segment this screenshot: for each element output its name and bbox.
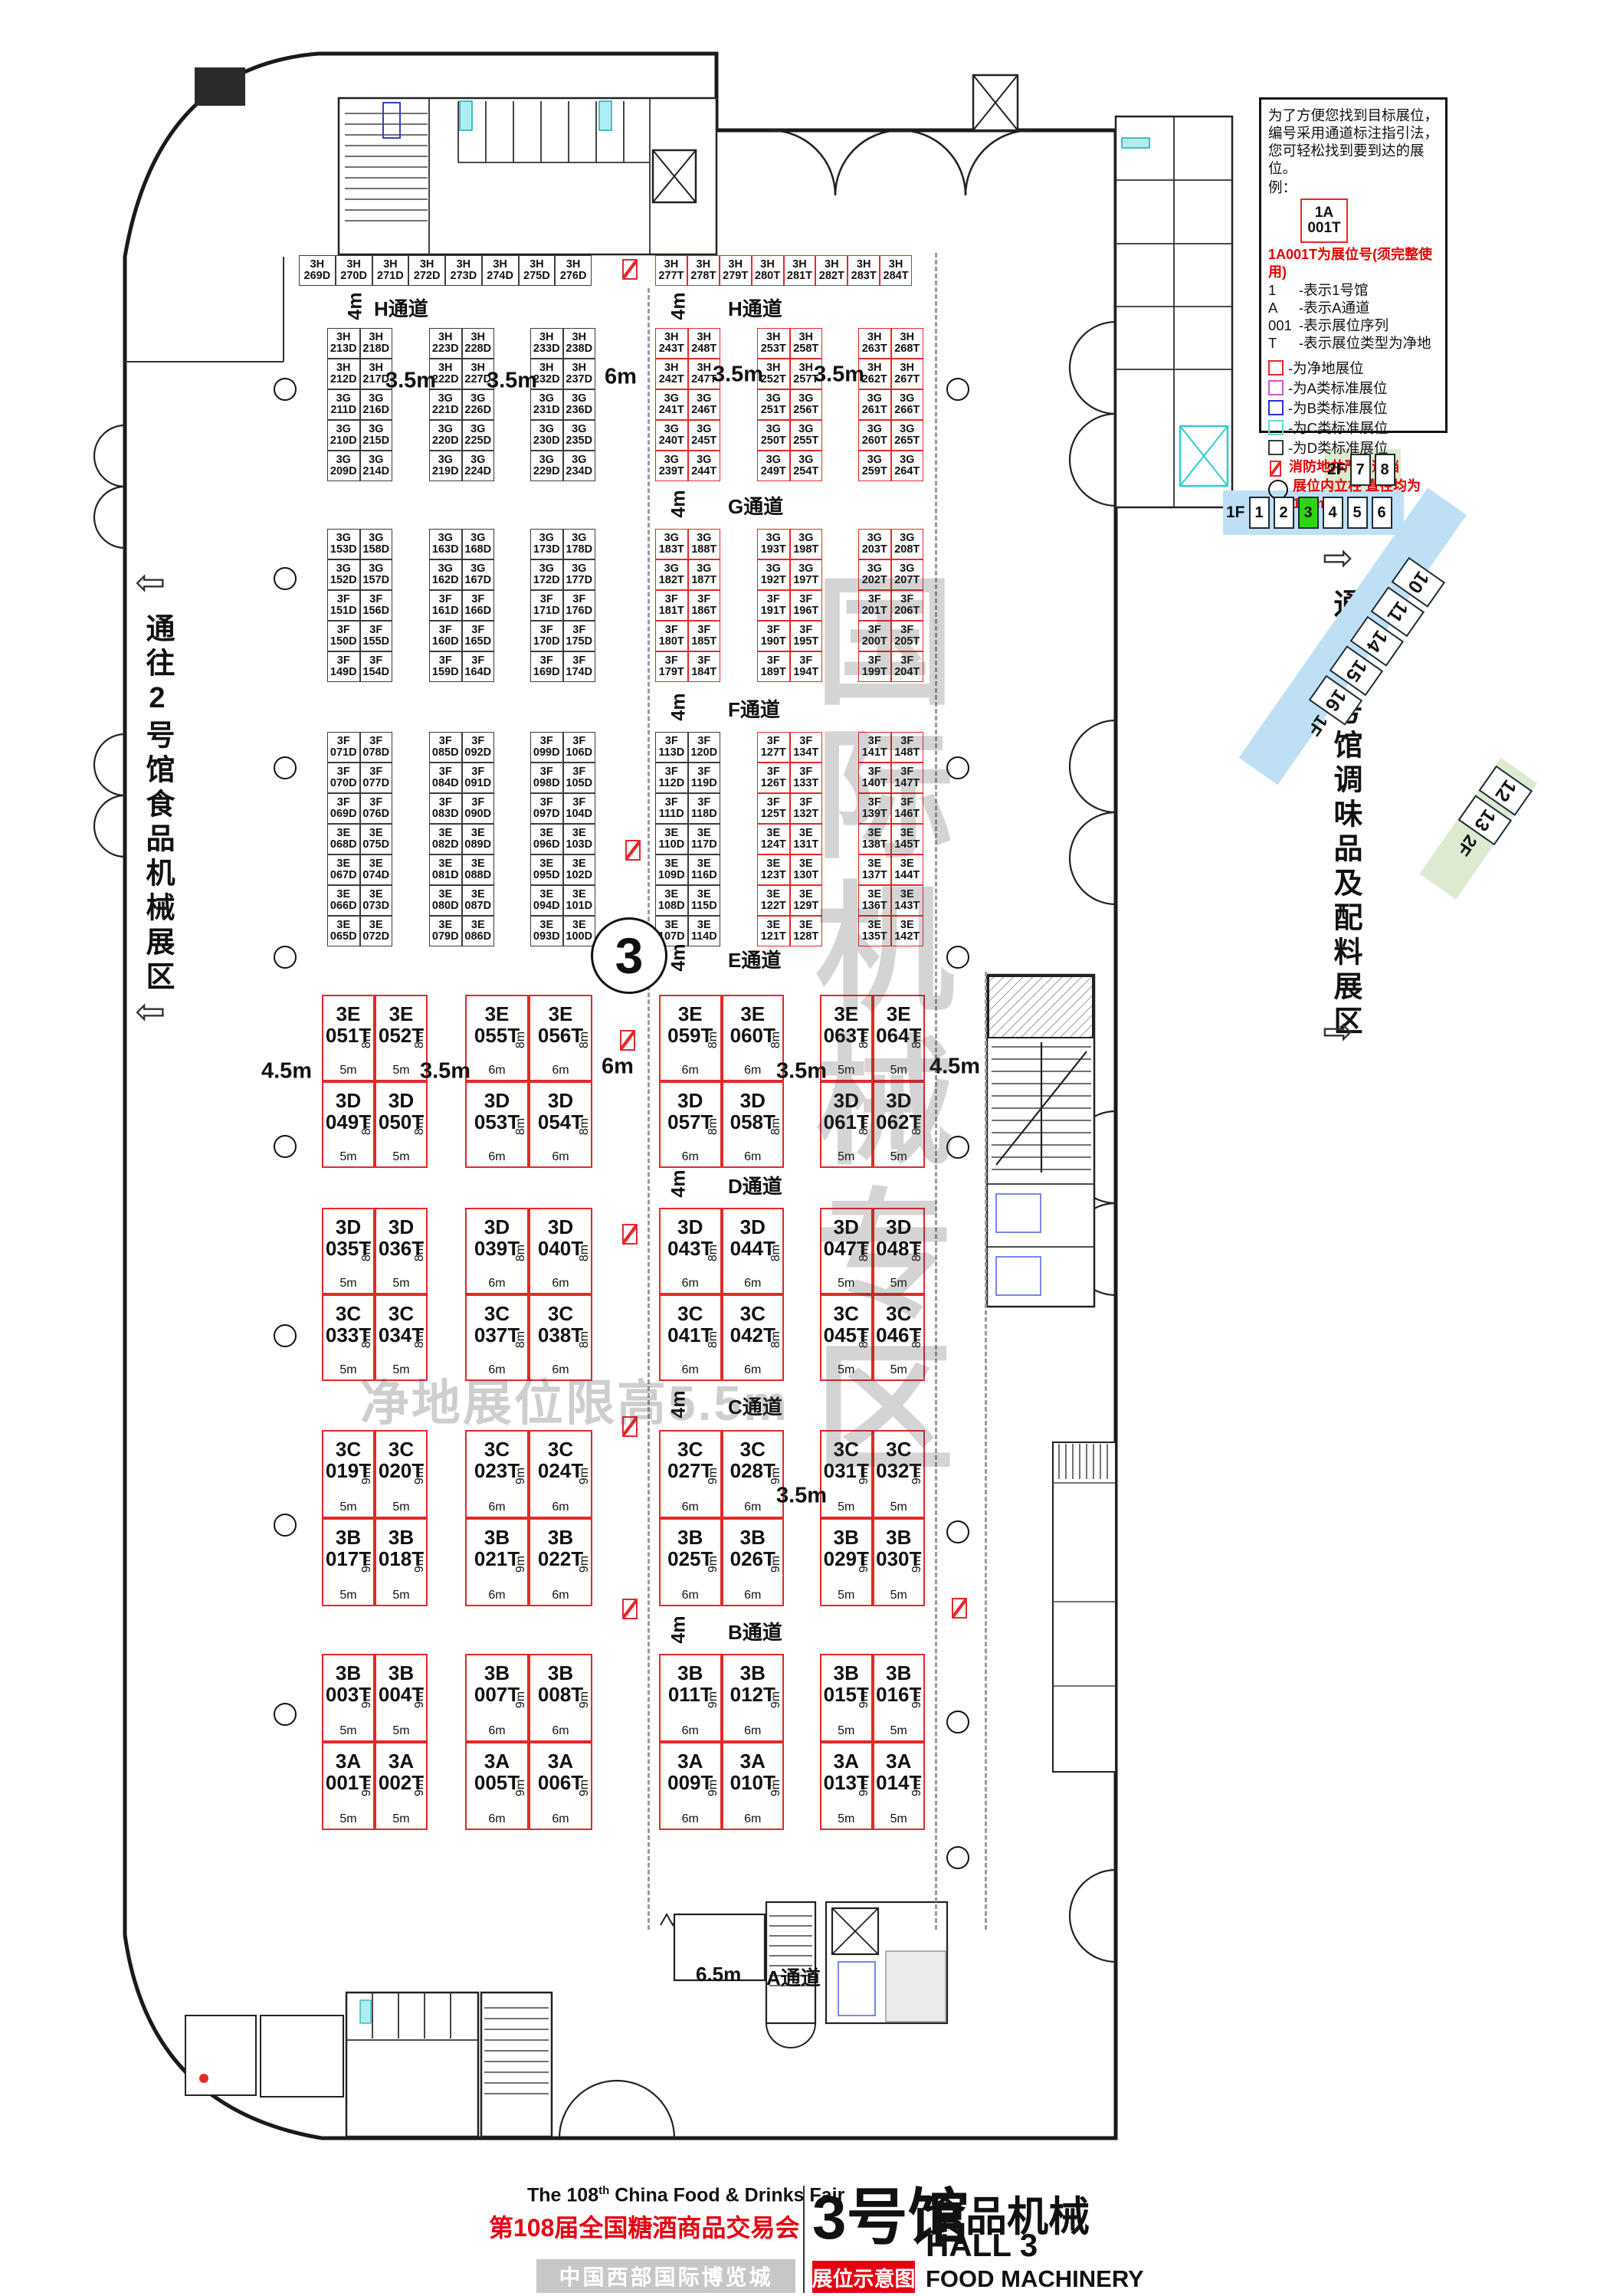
minimap-floor-label: 1F xyxy=(1226,503,1245,522)
booth-width: 5m xyxy=(874,1812,924,1826)
booth[interactable]: 3E079D xyxy=(429,916,462,946)
booth[interactable]: 3B025T9m6m xyxy=(659,1518,722,1606)
minimap-hall[interactable]: 5 xyxy=(1347,497,1368,529)
booth[interactable]: 3F078D xyxy=(360,732,393,763)
booth[interactable]: 3F077D xyxy=(360,763,393,793)
booth[interactable]: 3G162D xyxy=(429,559,462,590)
booth[interactable]: 3F083D xyxy=(429,793,462,824)
booth[interactable]: 3H278T xyxy=(687,255,720,286)
booth[interactable]: 3G259T xyxy=(858,451,891,481)
booth-width: 5m xyxy=(323,1150,373,1164)
booth[interactable]: 3F151D xyxy=(327,590,360,621)
booth[interactable]: 3E080D xyxy=(429,885,462,916)
booth[interactable]: 3E056T8m6m xyxy=(529,995,592,1081)
booth[interactable]: 3G239T xyxy=(655,451,688,481)
booth[interactable]: 3H281T xyxy=(784,255,816,286)
booth[interactable]: 3B030T9m5m xyxy=(873,1518,926,1606)
booth-hall: 3G xyxy=(572,424,586,436)
booth[interactable]: 3F098D xyxy=(530,763,563,793)
booth[interactable]: 3G182T xyxy=(655,559,688,590)
booth[interactable]: 3G219D xyxy=(429,451,462,481)
booth[interactable]: 3G240T xyxy=(655,420,688,451)
booth[interactable]: 3H223D xyxy=(429,328,462,359)
booth[interactable]: 3B018T9m5m xyxy=(375,1518,428,1606)
booth[interactable]: 3H238D xyxy=(563,328,596,359)
booth[interactable]: 3B008T9m6m xyxy=(529,1654,592,1742)
booth-num: 252T xyxy=(761,374,786,386)
booth[interactable]: 3B012T9m6m xyxy=(722,1654,785,1742)
booth[interactable]: 3D036T8m5m xyxy=(375,1208,428,1294)
booth[interactable]: 3C024T9m6m xyxy=(529,1430,592,1518)
booth[interactable]: 3H282T xyxy=(815,255,848,286)
booth[interactable]: 3G245T xyxy=(688,420,721,451)
booth[interactable]: 3F155D xyxy=(360,621,393,651)
booth[interactable]: 3D057T8m6m xyxy=(659,1081,722,1168)
booth[interactable]: 3G158D xyxy=(360,529,393,559)
booth[interactable]: 3H273D xyxy=(445,255,482,286)
booth[interactable]: 3F111D xyxy=(655,793,688,824)
hall-number-marker: 3 xyxy=(591,917,667,994)
minimap-hall[interactable]: 7 xyxy=(1350,454,1371,486)
legend-example-label: 例： xyxy=(1268,179,1439,196)
booth[interactable]: 3H267T xyxy=(891,359,924,389)
booth[interactable]: 3A001T9m5m xyxy=(322,1742,375,1830)
booth[interactable]: 3G188T xyxy=(688,529,721,559)
booth[interactable]: 3H268T xyxy=(891,328,924,359)
booth[interactable]: 3F181T xyxy=(655,590,688,621)
booth-hall: 3G xyxy=(471,563,485,576)
legend-box: 为了方便您找到目标展位，编号采用通道标注指引法，您可轻松找到要到达的展位。 例：… xyxy=(1259,97,1448,433)
booth[interactable]: 3A002T9m5m xyxy=(375,1742,428,1830)
booth[interactable]: 3G266T xyxy=(891,389,924,420)
booth[interactable]: 3G221D xyxy=(429,389,462,420)
booth-num: 156D xyxy=(362,605,389,618)
booth[interactable]: 3B017T9m5m xyxy=(322,1518,375,1606)
booth[interactable]: 3D054T8m6m xyxy=(529,1081,592,1168)
booth-depth: 9m xyxy=(910,1779,924,1796)
booth-num: 104D xyxy=(566,809,592,821)
booth[interactable]: 3E108D xyxy=(655,885,688,916)
zone-dashed-line xyxy=(648,288,650,1930)
booth-hall: 3H xyxy=(420,259,434,271)
booth[interactable]: 3E065D xyxy=(327,916,360,946)
map-tag: 展位示意图 xyxy=(812,2261,915,2293)
booth[interactable]: 3F176D xyxy=(563,590,596,621)
booth[interactable]: 3F179T xyxy=(655,651,688,682)
booth[interactable]: 3F076D xyxy=(360,793,393,824)
booth[interactable]: 3E067D xyxy=(327,854,360,885)
booth[interactable]: 3H271D xyxy=(372,255,409,286)
booth[interactable]: 3E094D xyxy=(530,885,563,916)
booth[interactable]: 3G152D xyxy=(327,559,360,590)
booth[interactable]: 3E082D xyxy=(429,824,462,854)
booth[interactable]: 3F150D xyxy=(327,621,360,651)
booth[interactable]: 3D039T8m6m xyxy=(465,1208,529,1294)
booth[interactable]: 3H280T xyxy=(752,255,784,286)
booth[interactable]: 3G177D xyxy=(563,559,596,590)
minimap-hall[interactable]: 4 xyxy=(1323,497,1343,529)
booth-hall: 3G xyxy=(369,454,383,467)
minimap-hall[interactable]: 2 xyxy=(1274,497,1294,529)
booth[interactable]: 3A010T9m6m xyxy=(722,1742,785,1830)
booth[interactable]: 3F185T xyxy=(688,621,721,651)
booth[interactable]: 3G234D xyxy=(563,451,596,481)
booth-hall: 3G xyxy=(798,533,813,545)
booth-hall: 3E xyxy=(369,858,383,871)
booth[interactable]: 3E086D xyxy=(462,916,495,946)
booth[interactable]: 3B021T9m6m xyxy=(465,1518,529,1606)
pillar-column xyxy=(946,378,969,401)
booth-num: 072D xyxy=(362,931,389,943)
booth-width: 5m xyxy=(821,1724,871,1738)
booth[interactable]: 3A009T9m6m xyxy=(659,1742,722,1830)
booth[interactable]: 3E051T8m5m xyxy=(322,995,375,1081)
booth-hall: 3F xyxy=(369,766,382,779)
booth[interactable]: 3F091D xyxy=(462,763,495,793)
booth[interactable]: 3H212D xyxy=(327,359,360,389)
booth-hall: 3H xyxy=(471,362,485,375)
booth[interactable]: 3E095D xyxy=(530,854,563,885)
booth[interactable]: 3G231D xyxy=(530,389,563,420)
booth[interactable]: 3E117D xyxy=(688,824,721,854)
booth-width: 5m xyxy=(821,1501,871,1514)
booth[interactable]: 3G193T xyxy=(757,529,790,559)
booth[interactable]: 3G250T xyxy=(757,420,790,451)
booth-hall: 3G xyxy=(766,454,781,467)
booth[interactable]: 3G249T xyxy=(757,451,790,481)
booth-num: 079D xyxy=(432,931,459,943)
booth[interactable]: 3H284T xyxy=(880,255,912,286)
booth[interactable]: 3F186T xyxy=(688,590,721,621)
booth[interactable]: 3E089D xyxy=(462,824,495,854)
booth[interactable]: 3A013T9m5m xyxy=(820,1742,873,1830)
booth-depth: 9m xyxy=(413,1691,427,1708)
booth[interactable]: 3G244T xyxy=(688,451,721,481)
booth[interactable]: 3H253T xyxy=(757,328,790,359)
booth[interactable]: 3F119D xyxy=(688,763,721,793)
booth[interactable]: 3E102D xyxy=(563,854,596,885)
booth-num: 246T xyxy=(691,405,716,417)
booth-depth: 9m xyxy=(514,1779,528,1796)
minimap-hall[interactable]: 8 xyxy=(1375,454,1395,486)
booth[interactable]: 3F149D xyxy=(327,651,360,682)
booth[interactable]: 3F071D xyxy=(327,732,360,763)
booth[interactable]: 3G229D xyxy=(530,451,563,481)
booth[interactable]: 3C019T9m5m xyxy=(322,1430,375,1518)
booth[interactable]: 3G251T xyxy=(757,389,790,420)
booth[interactable]: 3G163D xyxy=(429,529,462,559)
pillar-column xyxy=(274,567,297,590)
booth[interactable]: 3E072D xyxy=(360,916,393,946)
booth[interactable]: 3F171D xyxy=(530,590,563,621)
booth-num: 249T xyxy=(761,466,786,478)
booth[interactable]: 3E068D xyxy=(327,824,360,854)
aisle-label: G通道 xyxy=(728,491,783,520)
booth-hall: 3F xyxy=(665,594,678,606)
booth-hall: 3G xyxy=(539,454,554,467)
booth[interactable]: 3H279T xyxy=(720,255,752,286)
minimap-hall[interactable]: 3 xyxy=(1298,497,1319,529)
booth-hall: 3G xyxy=(369,533,383,545)
booth[interactable]: 3H258T xyxy=(790,328,823,359)
booth-num: 212D xyxy=(330,374,357,386)
booth[interactable]: 3H228D xyxy=(462,328,495,359)
booth[interactable]: 3E110D xyxy=(655,824,688,854)
booth[interactable]: 3E074D xyxy=(360,854,393,885)
booth-num: 193T xyxy=(761,544,786,556)
booth[interactable]: 3D049T8m5m xyxy=(322,1081,375,1168)
booth[interactable]: 3D053T8m6m xyxy=(465,1081,529,1168)
booth-depth: 9m xyxy=(360,1779,374,1796)
booth[interactable]: 3B003T9m5m xyxy=(322,1654,375,1742)
booth-hall: 3G xyxy=(664,424,679,436)
booth-hall: 3F xyxy=(471,766,484,779)
booth-hall: 3H xyxy=(697,259,711,271)
booth[interactable]: 3E055T8m6m xyxy=(465,995,529,1081)
booth-width: 5m xyxy=(323,1812,373,1826)
booth-hall: 3G xyxy=(336,393,351,405)
booth-num: 226D xyxy=(464,405,491,417)
booth-width: 6m xyxy=(530,1064,591,1077)
booth[interactable]: 3G246T xyxy=(688,389,721,420)
booth-hall: 3H xyxy=(857,259,871,271)
booth[interactable]: 3D035T8m5m xyxy=(322,1208,375,1294)
booth-hall: 3F xyxy=(439,594,452,606)
booth[interactable]: 3G235D xyxy=(563,420,596,451)
booth[interactable]: 3G230D xyxy=(530,420,563,451)
booth[interactable]: 3G167D xyxy=(462,559,495,590)
fair-title-cn: 第108届全国糖酒商品交易会 xyxy=(489,2209,795,2244)
booth[interactable]: 3F166D xyxy=(462,590,495,621)
booth-hall: 3G xyxy=(867,393,882,405)
pillar-column xyxy=(274,378,297,401)
booth[interactable]: 3H275D xyxy=(519,255,556,286)
booth-num: 111D xyxy=(659,809,684,821)
booth[interactable]: 3G216D xyxy=(360,389,393,420)
booth[interactable]: 3G261T xyxy=(858,389,891,420)
booth[interactable]: 3H283T xyxy=(848,255,880,286)
booth[interactable]: 3E093D xyxy=(530,916,563,946)
booth[interactable]: 3F070D xyxy=(327,763,360,793)
booth-num: 216D xyxy=(362,405,389,417)
booth[interactable]: 3D050T8m5m xyxy=(375,1081,428,1168)
booth[interactable]: 3G215D xyxy=(360,420,393,451)
booth-hall: 3G xyxy=(697,424,711,436)
booth[interactable]: 3G241T xyxy=(655,389,688,420)
booth[interactable]: 3F160D xyxy=(429,621,462,651)
booth-hall: 3E xyxy=(471,889,485,901)
booth[interactable]: 3G172D xyxy=(530,559,563,590)
booth[interactable]: 3F170D xyxy=(530,621,563,651)
booth[interactable]: 3H213D xyxy=(327,328,360,359)
booth[interactable]: 3E100D xyxy=(563,916,596,946)
booth[interactable]: 3E096D xyxy=(530,824,563,854)
booth[interactable]: 3G178D xyxy=(563,529,596,559)
booth[interactable]: 3F120D xyxy=(688,732,721,763)
booth[interactable]: 3H270D xyxy=(336,255,372,286)
booth-hall: 3F xyxy=(540,736,553,748)
booth[interactable]: 3A006T9m6m xyxy=(529,1742,592,1830)
booth[interactable]: 3H242T xyxy=(655,359,688,389)
booth-num: 113D xyxy=(658,747,684,759)
booth[interactable]: 3B029T9m5m xyxy=(820,1518,873,1606)
zone-dashed-line xyxy=(985,972,987,1930)
booth[interactable]: 3H263T xyxy=(858,328,891,359)
booth[interactable]: 3D043T8m6m xyxy=(659,1208,722,1294)
booth-num: 100D xyxy=(566,931,592,943)
booth[interactable]: 3F106D xyxy=(563,732,596,763)
booth[interactable]: 3E075D xyxy=(360,824,393,854)
booth[interactable]: 3G224D xyxy=(462,451,495,481)
booth[interactable]: 3E059T8m6m xyxy=(659,995,722,1081)
booth[interactable]: 3F184T xyxy=(688,651,721,682)
booth[interactable]: 3B004T9m5m xyxy=(375,1654,428,1742)
booth[interactable]: 3G220D xyxy=(429,420,462,451)
booth[interactable]: 3H233D xyxy=(530,328,563,359)
booth[interactable]: 3F174D xyxy=(563,651,596,682)
booth[interactable]: 3G203T xyxy=(858,529,891,559)
booth-hall: 3F xyxy=(572,625,585,637)
booth-num: 077D xyxy=(362,778,389,790)
booth[interactable]: 3C027T9m6m xyxy=(659,1430,722,1518)
booth[interactable]: 3F112D xyxy=(655,763,688,793)
booth[interactable]: 3G187T xyxy=(688,559,721,590)
booth[interactable]: 3H218D xyxy=(360,328,393,359)
booth-depth: 8m xyxy=(707,1331,720,1348)
booth[interactable]: 3G209D xyxy=(327,451,360,481)
booth[interactable]: 3F085D xyxy=(429,732,462,763)
booth-depth: 9m xyxy=(769,1556,783,1573)
booth[interactable]: 3H243T xyxy=(655,328,688,359)
minimap-hall[interactable]: 6 xyxy=(1372,497,1392,529)
booth[interactable]: 3H276D xyxy=(555,255,592,286)
booth[interactable]: 3G264T xyxy=(891,451,924,481)
booth[interactable]: 3H237D xyxy=(563,359,596,389)
booth[interactable]: 3E073D xyxy=(360,885,393,916)
booth[interactable]: 3G173D xyxy=(530,529,563,559)
booth-hall: 3E xyxy=(336,858,350,871)
booth[interactable]: 3G236D xyxy=(563,389,596,420)
booth[interactable]: 3B016T9m5m xyxy=(873,1654,926,1742)
booth[interactable]: 3B022T9m6m xyxy=(529,1518,592,1606)
booth-width: 5m xyxy=(874,1724,924,1738)
booth[interactable]: 3F092D xyxy=(462,732,495,763)
booth[interactable]: 3G208T xyxy=(891,529,924,559)
booth[interactable]: 3E088D xyxy=(462,854,495,885)
booth[interactable]: 3G260T xyxy=(858,420,891,451)
booth[interactable]: 3H274D xyxy=(482,255,519,286)
booth[interactable]: 3E114D xyxy=(688,916,721,946)
left-arrow-icon: ⇦ xyxy=(135,561,166,604)
booth[interactable]: 3G157D xyxy=(360,559,393,590)
booth[interactable]: 3G265T xyxy=(891,420,924,451)
booth[interactable]: 3F154D xyxy=(360,651,393,682)
booth-num: 179T xyxy=(659,667,684,679)
booth[interactable]: 3B007T9m6m xyxy=(465,1654,529,1742)
booth[interactable]: 3C023T9m6m xyxy=(465,1430,529,1518)
booth[interactable]: 3G211D xyxy=(327,389,360,420)
booth-hall: 3E xyxy=(572,920,586,932)
booth[interactable]: 3F069D xyxy=(327,793,360,824)
booth[interactable]: 3G198T xyxy=(790,529,823,559)
booth[interactable]: 3A014T9m5m xyxy=(873,1742,926,1830)
booth[interactable]: 3G254T xyxy=(790,451,823,481)
aisle-dim-label: 4m xyxy=(668,1169,690,1197)
booth-num: 081D xyxy=(432,870,459,882)
booth[interactable]: 3F118D xyxy=(688,793,721,824)
booth[interactable]: 3E115D xyxy=(688,885,721,916)
booth[interactable]: 3C020T9m5m xyxy=(375,1430,428,1518)
booth-hall: 3G xyxy=(664,563,679,576)
booth[interactable]: 3F099D xyxy=(530,732,563,763)
booth-num: 150D xyxy=(330,636,357,648)
booth[interactable]: 3F175D xyxy=(563,621,596,651)
booth[interactable]: 3E116D xyxy=(688,854,721,885)
booth[interactable]: 3G153D xyxy=(327,529,360,559)
booth-hall: 3F xyxy=(337,766,350,779)
booth[interactable]: 3E081D xyxy=(429,854,462,885)
booth-num: 210D xyxy=(330,435,357,448)
booth[interactable]: 3F097D xyxy=(530,793,563,824)
booth[interactable]: 3A005T9m6m xyxy=(465,1742,529,1830)
booth[interactable]: 3F084D xyxy=(429,763,462,793)
booth[interactable]: 3G183T xyxy=(655,529,688,559)
booth[interactable]: 3F180T xyxy=(655,621,688,651)
booth[interactable]: 3G256T xyxy=(790,389,823,420)
booth[interactable]: 3H269D xyxy=(299,255,336,286)
booth-num: 235D xyxy=(566,435,592,448)
booth[interactable]: 3G225D xyxy=(462,420,495,451)
booth-num: 203T xyxy=(862,544,887,556)
booth-num: 182T xyxy=(659,575,684,587)
booth-hall: 3G xyxy=(766,393,781,405)
booth[interactable]: 3E087D xyxy=(462,885,495,916)
booth[interactable]: 3F113D xyxy=(655,732,688,763)
booth[interactable]: 3F159D xyxy=(429,651,462,682)
booth[interactable]: 3E109D xyxy=(655,854,688,885)
booth-hall: 3F xyxy=(665,766,678,779)
booth[interactable]: 3F165D xyxy=(462,621,495,651)
booth[interactable]: 3F105D xyxy=(563,763,596,793)
booth[interactable]: 3H277T xyxy=(655,255,687,286)
booth[interactable]: 3F164D xyxy=(462,651,495,682)
booth[interactable]: 3F169D xyxy=(530,651,563,682)
booth[interactable]: 3G210D xyxy=(327,420,360,451)
booth[interactable]: 3H272D xyxy=(408,255,445,286)
booth[interactable]: 3F161D xyxy=(429,590,462,621)
booth[interactable]: 3E066D xyxy=(327,885,360,916)
booth[interactable]: 3G226D xyxy=(462,389,495,420)
booth[interactable]: 3F090D xyxy=(462,793,495,824)
booth-depth: 9m xyxy=(707,1468,720,1484)
booth[interactable]: 3G214D xyxy=(360,451,393,481)
booth[interactable]: 3G168D xyxy=(462,529,495,559)
minimap-hall[interactable]: 1 xyxy=(1249,497,1270,529)
fire-hydrant-icon xyxy=(625,840,641,861)
booth[interactable]: 3D040T8m6m xyxy=(529,1208,592,1294)
booth[interactable]: 3E101D xyxy=(563,885,596,916)
booth[interactable]: 3F156D xyxy=(360,590,393,621)
booth[interactable]: 3G255T xyxy=(790,420,823,451)
booth[interactable]: 3B026T9m6m xyxy=(722,1518,785,1606)
booth[interactable]: 3B011T9m6m xyxy=(659,1654,722,1742)
booth[interactable]: 3E103D xyxy=(563,824,596,854)
booth-num: 088D xyxy=(464,870,491,882)
booth[interactable]: 3B015T9m5m xyxy=(820,1654,873,1742)
booth-depth: 8m xyxy=(360,1245,374,1261)
booth[interactable]: 3H248T xyxy=(688,328,721,359)
booth[interactable]: 3F104D xyxy=(563,793,596,824)
